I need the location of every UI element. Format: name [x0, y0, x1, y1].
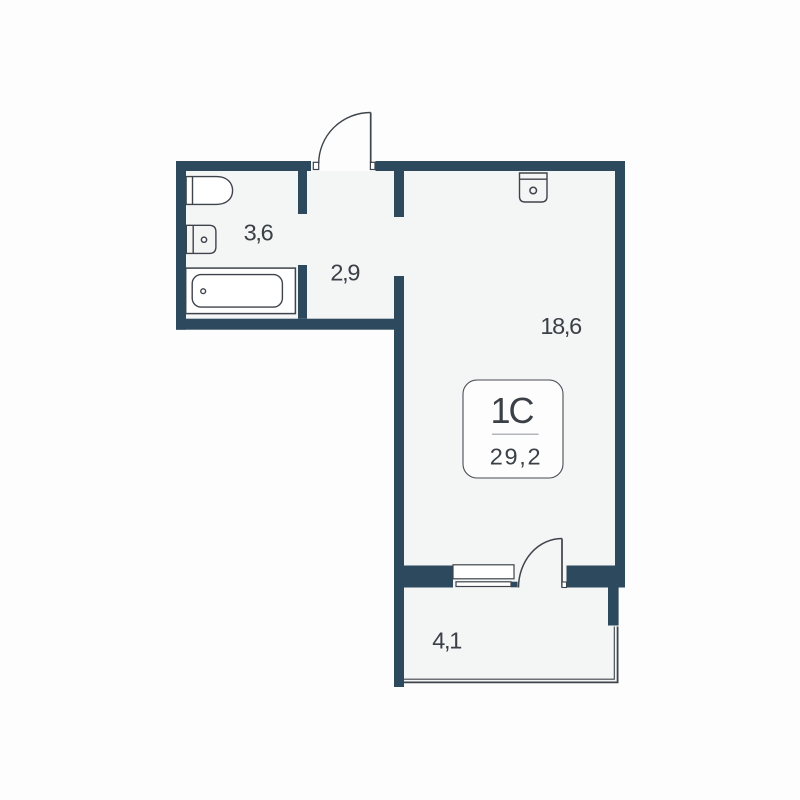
svg-text:18,6: 18,6 [540, 313, 582, 339]
svg-text:3,6: 3,6 [244, 220, 274, 246]
svg-text:2,9: 2,9 [330, 259, 359, 285]
svg-text:4,1: 4,1 [432, 627, 461, 653]
svg-text:1C: 1C [490, 390, 533, 431]
svg-text:29,2: 29,2 [490, 444, 543, 470]
